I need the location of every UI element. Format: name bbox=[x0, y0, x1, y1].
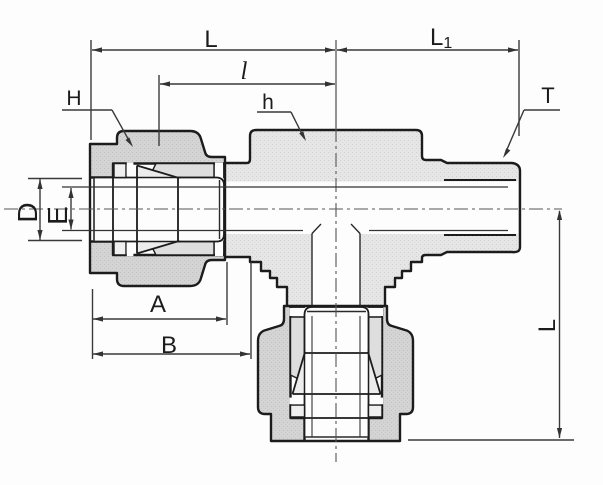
svg-text:A: A bbox=[150, 291, 166, 318]
svg-text:H: H bbox=[66, 87, 81, 110]
svg-text:L: L bbox=[534, 319, 561, 332]
svg-text:T: T bbox=[541, 83, 554, 108]
svg-text:E: E bbox=[42, 206, 73, 225]
svg-text:l: l bbox=[241, 58, 248, 85]
svg-text:B: B bbox=[161, 332, 177, 359]
svg-text:L1: L1 bbox=[430, 24, 452, 52]
svg-text:L: L bbox=[204, 26, 217, 53]
svg-text:D: D bbox=[12, 202, 43, 222]
svg-text:h: h bbox=[262, 91, 274, 114]
